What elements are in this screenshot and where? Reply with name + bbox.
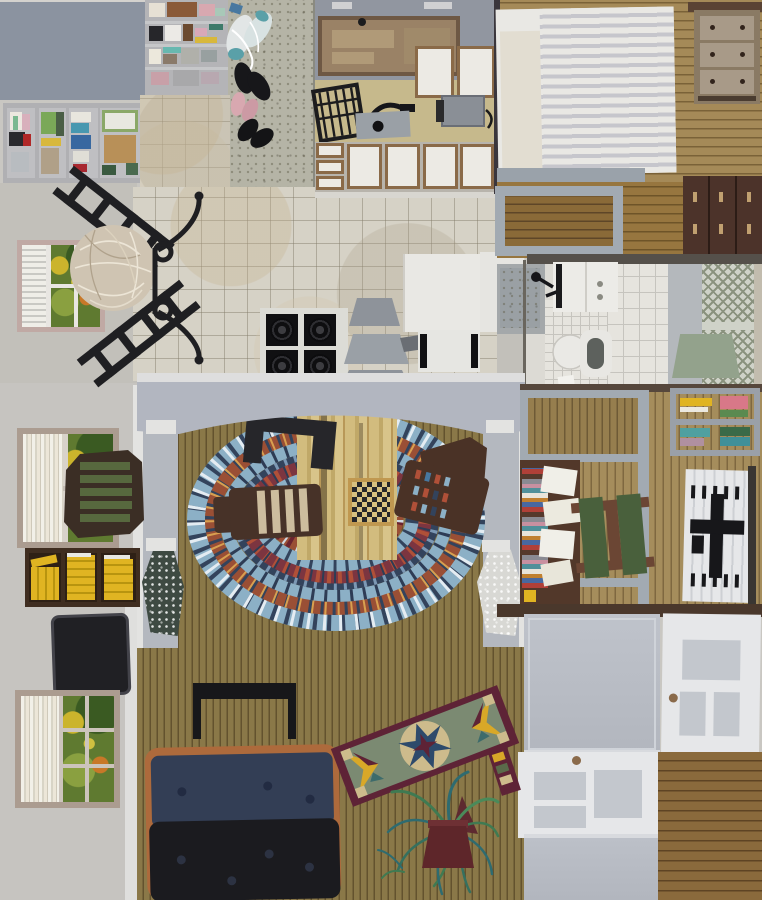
office-framed-panel [520, 390, 648, 462]
island-white [403, 254, 481, 332]
shelf-item [181, 48, 199, 64]
cork-board [104, 135, 136, 163]
shelf-item [151, 72, 169, 85]
cabinet-panel [332, 52, 374, 64]
drawer-knob [710, 79, 715, 84]
wardrobe-handle [719, 192, 723, 202]
window-curtain [21, 696, 59, 802]
wardrobe-handle [693, 192, 697, 202]
paper-sheet [539, 529, 575, 560]
book [680, 428, 710, 437]
door-panel [682, 640, 741, 681]
tick-mark [691, 573, 695, 586]
dresser-base [698, 96, 756, 101]
drawer-knob [710, 52, 715, 57]
door-panel [534, 806, 586, 828]
tick-mark [724, 574, 728, 587]
sink-drain [597, 294, 603, 300]
yellow-square [524, 590, 536, 602]
book [720, 437, 750, 446]
fabric [23, 134, 31, 146]
drawer-knob [740, 79, 745, 84]
window-mullion [59, 696, 63, 802]
window-mullion [59, 728, 114, 732]
drawer-front [316, 160, 344, 174]
leaning-book [30, 554, 57, 567]
door-panel [713, 692, 740, 736]
cabinet-door [385, 144, 420, 189]
wardrobe-handle [747, 224, 751, 234]
book-pages [104, 555, 130, 559]
tick-mark [702, 486, 706, 499]
striped-bed [496, 6, 677, 175]
deck-frame-inner [505, 196, 613, 246]
paneled-door-upright [661, 613, 761, 754]
mantel-ledge [137, 373, 525, 383]
clothes-panel [100, 108, 141, 178]
yellow-books [31, 567, 59, 600]
drawer-front [316, 143, 344, 158]
column-capital [486, 420, 514, 433]
cutting-board [355, 111, 410, 140]
wardrobe-handle [693, 224, 697, 234]
shelf-divider [145, 44, 228, 47]
console-top [193, 683, 296, 699]
tick-mark [735, 486, 739, 499]
shelf-item [167, 2, 197, 17]
wardrobe-seam [735, 176, 737, 260]
black-chair-glyph-foot [692, 535, 704, 553]
door-panel [534, 772, 586, 800]
book [720, 410, 748, 417]
column-capital [146, 538, 176, 551]
fabric [71, 112, 91, 122]
fabric [13, 116, 18, 130]
book [680, 398, 712, 406]
drawer-knob [740, 52, 745, 57]
white-rug-bed [682, 469, 751, 603]
bed-stripes [540, 6, 677, 174]
dresser-drawer [700, 43, 754, 67]
toilet [553, 330, 612, 377]
dresser-drawer [700, 70, 754, 94]
dresser-drawer [700, 16, 754, 40]
shelf-item [195, 37, 217, 43]
shelf-item [201, 72, 219, 84]
cabinet-door [460, 144, 494, 189]
counter-white-bit [424, 2, 452, 9]
black-flats [234, 115, 278, 152]
fabric [71, 123, 89, 133]
book-pages [67, 553, 91, 557]
window-mullion [59, 764, 114, 768]
three-drawer-dresser [694, 10, 760, 104]
wardrobe-handle [719, 224, 723, 234]
cabinet-door [423, 144, 458, 189]
sink-drain [597, 281, 603, 287]
tv-screen [51, 613, 132, 698]
door-panel [679, 692, 706, 736]
fabric [41, 112, 57, 134]
tray-handle [471, 334, 478, 368]
tick-mark [702, 574, 706, 587]
shelf-mid-bar [676, 419, 754, 425]
shower-head [531, 272, 559, 296]
shelf-item [201, 50, 217, 62]
bath-fixtures [495, 258, 762, 403]
vanity-faucet [556, 264, 562, 308]
door-panel [594, 770, 642, 818]
tick-mark [735, 574, 739, 587]
tick-mark [724, 486, 728, 499]
serving-tray [418, 330, 480, 372]
shelf-section [101, 553, 136, 602]
tray-handle [420, 334, 427, 368]
shelf-item [149, 3, 165, 17]
book [720, 396, 748, 409]
shelf-item [199, 4, 215, 16]
paper-sheet [540, 560, 573, 587]
arch-beam [137, 371, 525, 437]
paneled-door-flat [518, 752, 658, 838]
door-knob [669, 693, 678, 702]
dark-wardrobe [683, 176, 762, 260]
slate-panel [0, 2, 145, 100]
clothes-panel [7, 108, 35, 178]
clothes-panel [39, 108, 66, 178]
counter-white-bit [332, 2, 352, 9]
black-chair-glyph-v [709, 494, 724, 578]
stool-step [349, 298, 400, 326]
door-knob [572, 756, 581, 765]
brown-chair-left [213, 484, 324, 542]
closet-shelf-unit [145, 0, 228, 95]
interior-collage-painting [0, 0, 762, 900]
drawer-knob [710, 25, 715, 30]
framed-fabric [102, 110, 138, 132]
shelf-item [165, 25, 181, 41]
stool-step [344, 334, 409, 364]
spider-plant [380, 770, 500, 900]
foliage-window-bottom [15, 690, 120, 808]
green-cushion-chair [570, 491, 655, 585]
panel-inner-wood [528, 398, 640, 454]
yellow-book-shelf [25, 548, 140, 607]
burner [266, 314, 298, 346]
fabric [22, 114, 30, 130]
shelf-item [149, 49, 161, 64]
shelf-item [149, 26, 163, 41]
shelf-section [29, 553, 61, 602]
cabinet-door [347, 144, 382, 189]
drawer-front [316, 176, 344, 190]
shelf-item [173, 70, 199, 86]
book [680, 438, 704, 446]
sneakers [221, 8, 277, 74]
drawer-knob [740, 25, 745, 30]
bed-pillow-panel [500, 31, 542, 172]
console-leg [193, 699, 201, 739]
shelf-item [163, 47, 181, 53]
office-right-bar [748, 466, 756, 606]
cabinet-knob [358, 18, 366, 26]
sofa [144, 740, 343, 900]
yellow-books [104, 559, 133, 600]
paper-sheet [540, 466, 577, 496]
console-leg [288, 699, 296, 739]
shelf-section [65, 553, 97, 602]
window-mullion [85, 696, 89, 802]
wicker-sphere [70, 225, 156, 311]
fabric [71, 135, 91, 149]
book [680, 407, 708, 412]
arched-beam [137, 382, 525, 434]
toaster [436, 96, 492, 128]
flat-door-gray-b [524, 838, 660, 900]
cabinet-base-strip [315, 192, 497, 198]
fabric [11, 152, 29, 172]
dining-chairs-group [0, 170, 230, 390]
tick-mark [691, 485, 695, 498]
bottom-right-floor [658, 752, 762, 900]
deck-gray-frame [495, 186, 623, 256]
column-capital [482, 540, 510, 552]
shelf-item [209, 24, 223, 30]
blue-item [229, 2, 243, 14]
fabric [56, 112, 64, 136]
office-desk [520, 460, 580, 608]
brown-chair-right [393, 437, 490, 536]
shelf-item [195, 28, 207, 36]
chair-silhouette-curved [155, 192, 204, 365]
console-table [185, 678, 305, 748]
flat-door-gray-a [524, 614, 660, 754]
cabinet-panel [332, 30, 394, 48]
fabric [73, 151, 89, 162]
door-inner-line [528, 618, 656, 750]
plant-pot [422, 826, 474, 868]
wardrobe-handle [747, 192, 751, 202]
armchair-silhouette [40, 440, 150, 545]
black-chair-glyph-h [690, 519, 744, 534]
burner [304, 314, 336, 346]
wall-book-shelf [670, 388, 760, 456]
fabric [41, 138, 61, 146]
yellow-books [67, 555, 95, 600]
wardrobe-seam [708, 176, 710, 260]
shelf-item [183, 24, 193, 41]
column-capital [146, 420, 176, 434]
shelf-item [163, 54, 177, 64]
book [720, 427, 750, 436]
